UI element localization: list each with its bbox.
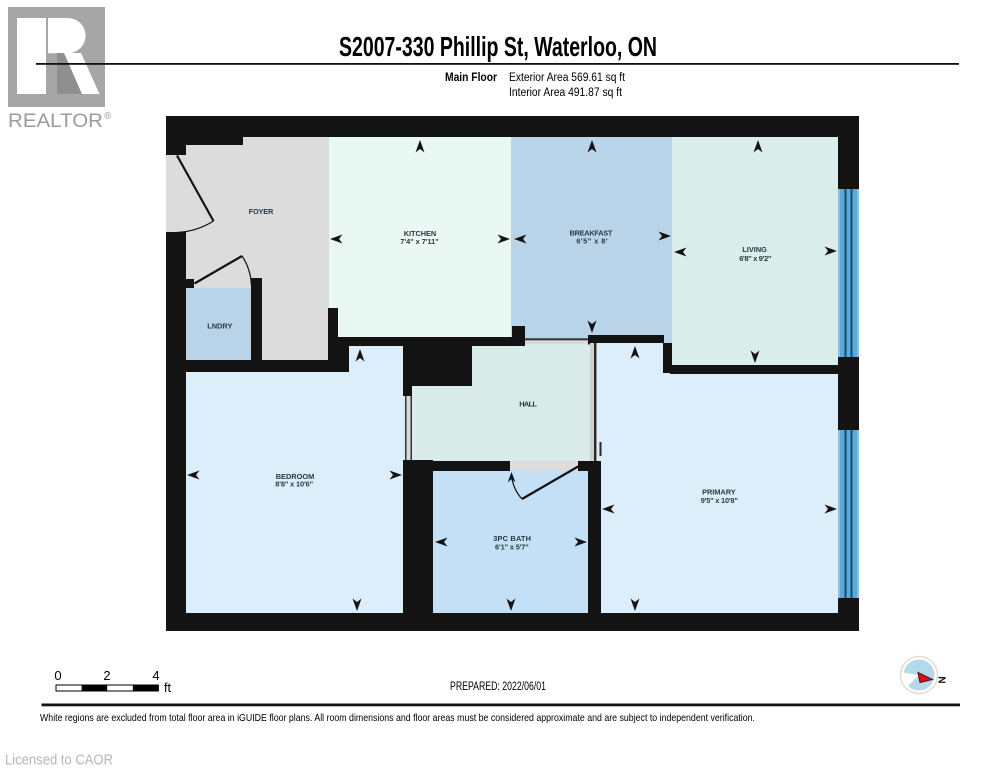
svg-text:0: 0 [54, 668, 61, 683]
svg-text:4: 4 [152, 668, 159, 683]
svg-text:FOYER: FOYER [249, 207, 274, 216]
svg-text:REALTOR: REALTOR [8, 111, 103, 132]
svg-text:LNDRY: LNDRY [207, 321, 232, 330]
svg-text:Licensed to CAOR: Licensed to CAOR [5, 753, 113, 768]
svg-text:7'4" x 7'11": 7'4" x 7'11" [400, 237, 439, 246]
svg-text:HALL: HALL [519, 400, 537, 409]
svg-text:9'5" x 10'8": 9'5" x 10'8" [701, 496, 739, 505]
svg-text:®: ® [104, 111, 112, 122]
svg-text:2: 2 [103, 668, 110, 683]
svg-text:PREPARED: 2022/06/01: PREPARED: 2022/06/01 [450, 681, 546, 693]
svg-text:6'5" x 8': 6'5" x 8' [576, 237, 608, 246]
svg-text:Main Floor: Main Floor [445, 72, 497, 84]
svg-text:Exterior Area 569.61 sq ft: Exterior Area 569.61 sq ft [509, 72, 626, 84]
svg-text:PRIMARY: PRIMARY [702, 487, 736, 496]
svg-text:Interior Area 491.87 sq ft: Interior Area 491.87 sq ft [509, 87, 623, 99]
svg-text:N: N [935, 676, 946, 683]
svg-text:8'8" x 10'6": 8'8" x 10'6" [275, 480, 313, 489]
svg-text:LIVING: LIVING [742, 245, 767, 254]
svg-text:ft: ft [164, 681, 171, 695]
svg-text:6'1" x 5'7": 6'1" x 5'7" [495, 542, 529, 551]
svg-text:6'8" x 9'2": 6'8" x 9'2" [739, 254, 772, 263]
svg-text:White regions are excluded fro: White regions are excluded from total fl… [40, 712, 755, 724]
svg-text:S2007-330 Phillip St, Waterloo: S2007-330 Phillip St, Waterloo, ON [339, 31, 657, 62]
